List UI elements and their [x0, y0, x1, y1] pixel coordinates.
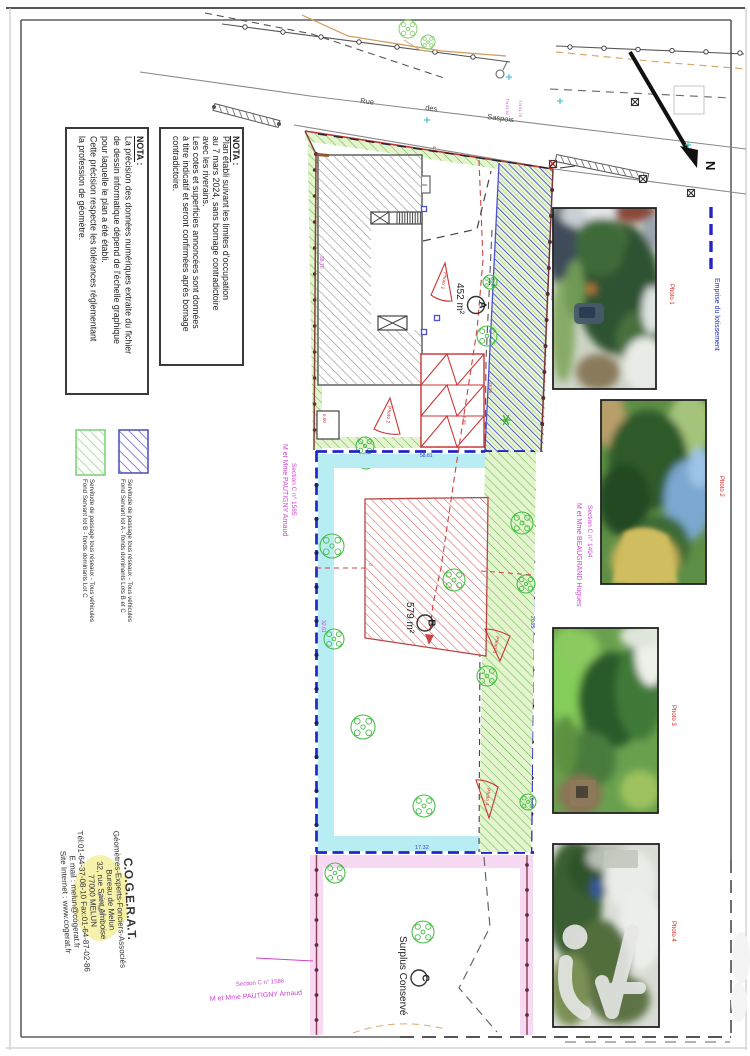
svg-text:17.32: 17.32	[415, 845, 429, 851]
svg-text:N: N	[703, 161, 718, 170]
svg-text:Cette précision respecte les t: Cette précision respecte les tolérances …	[89, 136, 99, 342]
svg-text:579 m²: 579 m²	[404, 602, 415, 634]
svg-text:pour laquelle le plan a été ét: pour laquelle le plan a été établi.	[100, 136, 110, 263]
svg-text:C: C	[420, 974, 431, 981]
svg-text:Fond Servant lot B - fonds dom: Fond Servant lot B - fonds dominants Lot…	[81, 479, 88, 598]
svg-text:Emprise du lotissement: Emprise du lotissement	[713, 278, 720, 351]
svg-text:NOTA :: NOTA :	[231, 136, 241, 165]
svg-text:Surplus Conservé: Surplus Conservé	[397, 936, 408, 1016]
svg-text:La précision des données numér: La précision des données numériques extr…	[123, 136, 133, 354]
svg-text:Servitude de passage tous rése: Servitude de passage tous réseaux - Tous…	[88, 479, 95, 622]
svg-text:des: des	[425, 103, 438, 113]
svg-text:6.56: 6.56	[462, 416, 467, 425]
svg-text:Plan établi suivant les limite: Plan établi suivant les limites d'occupa…	[221, 136, 231, 300]
svg-text:A: A	[477, 301, 488, 308]
svg-text:Les cotes et superficies annon: Les cotes et superficies annoncées sont …	[191, 136, 201, 329]
svg-text:Photo 3: Photo 3	[670, 705, 676, 726]
svg-text:Servitude de passage tous rése: Servitude de passage tous réseaux - Tous…	[126, 479, 133, 622]
svg-text:38.70: 38.70	[318, 256, 324, 269]
svg-text:de dessin informatique dépend: de dessin informatique dépend de l'échel…	[112, 136, 122, 344]
svg-text:Section C n° 1494: Section C n° 1494	[586, 505, 594, 558]
svg-text:Section C n° 1586: Section C n° 1586	[236, 979, 285, 988]
svg-text:Fond Servant lot A - fonds dom: Fond Servant lot A - fonds dominants Lot…	[119, 479, 126, 613]
svg-text:32.61: 32.61	[320, 620, 326, 633]
svg-text:26.56: 26.56	[488, 382, 493, 394]
svg-text:452 m²: 452 m²	[454, 283, 465, 315]
svg-text:M et Mme PAUTIGNY Arnaud: M et Mme PAUTIGNY Arnaud	[210, 990, 303, 1003]
svg-text:la profession de géomètre.: la profession de géomètre.	[77, 136, 87, 240]
svg-text:58.81: 58.81	[420, 453, 433, 459]
svg-text:20.29: 20.29	[529, 616, 535, 629]
svg-text:contradictoire.: contradictoire.	[171, 136, 181, 191]
svg-text:Section C n° 1585: Section C n° 1585	[290, 463, 298, 516]
svg-text:Photo 4: Photo 4	[670, 921, 676, 942]
svg-text:B: B	[426, 619, 437, 626]
svg-text:T.N 51.93: T.N 51.93	[505, 98, 510, 116]
svg-text:à titre indicatif et seront co: à titre indicatif et seront confirmées a…	[181, 136, 191, 332]
svg-text:T.N 51.75: T.N 51.75	[518, 100, 523, 118]
svg-text:Rue: Rue	[360, 96, 375, 107]
svg-text:5.00: 5.00	[322, 414, 327, 423]
svg-text:M et Mme PAUTIGNY Arnaud: M et Mme PAUTIGNY Arnaud	[281, 444, 288, 536]
svg-text:avec les riverains.: avec les riverains.	[201, 136, 211, 206]
svg-text:7d: 7d	[368, 562, 372, 567]
svg-text:Photo 1: Photo 1	[668, 284, 674, 305]
svg-text:Photo 2: Photo 2	[718, 476, 724, 497]
svg-text:au 7 mars 2024, sans bornage c: au 7 mars 2024, sans bornage contradicto…	[211, 136, 221, 311]
svg-text:Photo 2: Photo 2	[384, 406, 391, 424]
svg-text:M et Mme BEAUGRAND Hugues: M et Mme BEAUGRAND Hugues	[575, 503, 582, 607]
svg-text:NOTA :: NOTA :	[135, 136, 145, 165]
